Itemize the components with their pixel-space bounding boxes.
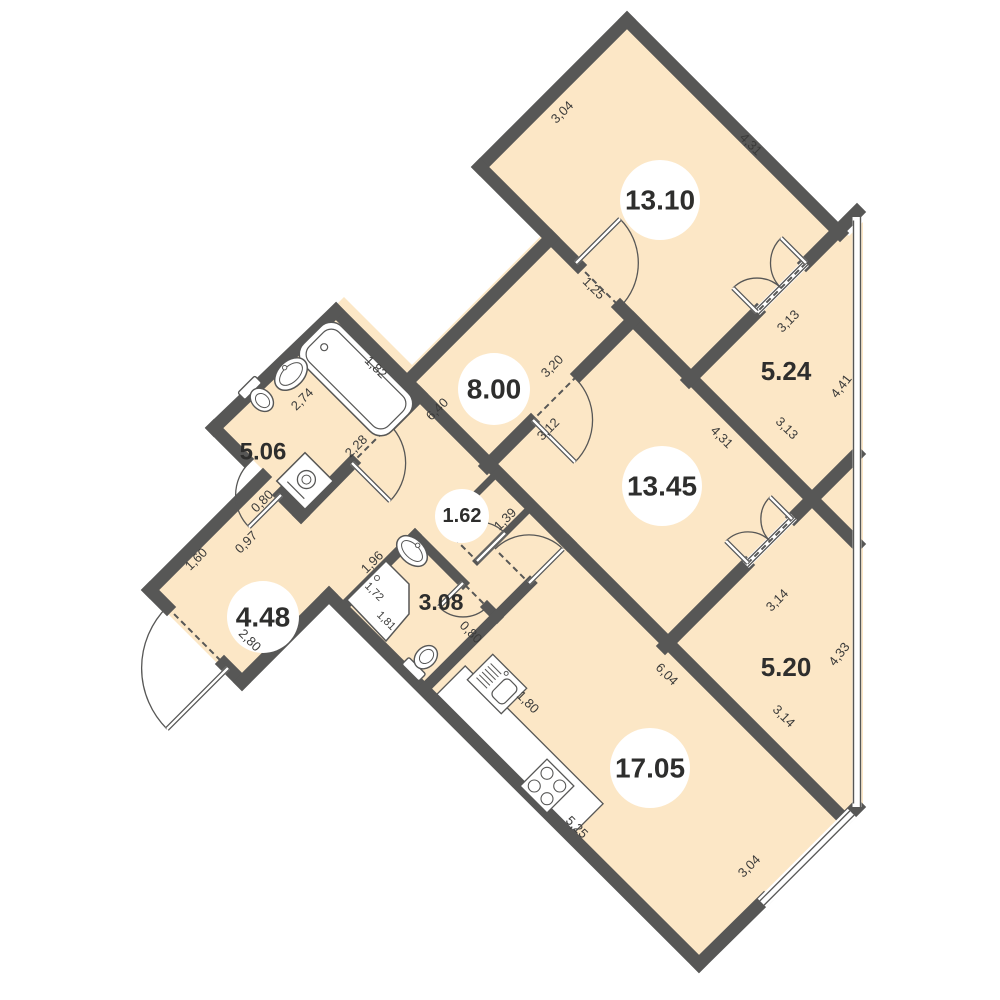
room-label-13.10: 13.10 xyxy=(620,160,700,240)
room-area-value: 1.62 xyxy=(443,505,482,527)
room-area-value: 5.20 xyxy=(761,652,812,682)
room-label-5.20: 5.20 xyxy=(761,652,812,682)
room-label-5.24: 5.24 xyxy=(761,356,812,386)
room-area-value: 8.00 xyxy=(467,374,522,405)
floor-plan-page: 13.1013.4517.058.004.481.625.063.085.245… xyxy=(0,0,1000,1000)
room-area-value: 17.05 xyxy=(615,753,685,784)
door-leaf-frame xyxy=(168,669,229,730)
room-label-3.08: 3.08 xyxy=(419,589,464,615)
room-area-value: 5.06 xyxy=(240,439,287,466)
floor-plan-svg: 13.1013.4517.058.004.481.625.063.085.245… xyxy=(0,0,1000,1000)
room-label-1.62: 1.62 xyxy=(435,489,489,543)
shower-head xyxy=(375,576,380,581)
room-label-13.45: 13.45 xyxy=(622,446,702,526)
door-swing-arc xyxy=(142,607,167,729)
room-label-17.05: 17.05 xyxy=(610,728,690,808)
room-area-value: 5.24 xyxy=(761,356,812,386)
room-area-value: 13.10 xyxy=(625,185,695,216)
door-leaf-frame xyxy=(166,667,227,728)
room-label-8.00: 8.00 xyxy=(458,353,530,425)
room-area-value: 3.08 xyxy=(419,589,464,615)
room-area-value: 13.45 xyxy=(627,471,697,502)
room-label-5.06: 5.06 xyxy=(240,439,287,466)
door-leaf xyxy=(167,668,228,729)
